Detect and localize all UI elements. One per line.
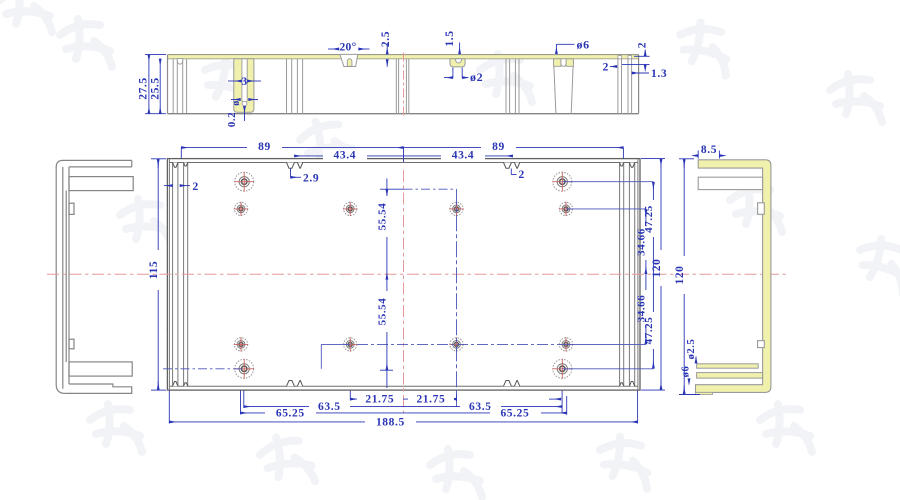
svg-text:ø2: ø2 [470, 70, 483, 84]
svg-text:1.5: 1.5 [444, 30, 456, 46]
svg-text:115: 115 [148, 261, 160, 279]
svg-text:ø: ø [231, 100, 242, 106]
svg-text:47.25: 47.25 [643, 317, 655, 345]
svg-text:47.25: 47.25 [643, 205, 655, 233]
svg-text:21.75: 21.75 [365, 394, 394, 406]
svg-text:188.5: 188.5 [376, 417, 405, 429]
svg-text:20°: 20° [340, 42, 357, 54]
svg-text:120: 120 [674, 265, 686, 284]
svg-text:63.5: 63.5 [318, 401, 341, 413]
svg-text:89: 89 [492, 141, 505, 153]
svg-text:63.5: 63.5 [469, 401, 492, 413]
svg-text:2: 2 [193, 181, 199, 193]
svg-text:2.9: 2.9 [303, 173, 319, 185]
svg-text:55.54: 55.54 [377, 203, 389, 231]
svg-text:8.5: 8.5 [701, 144, 717, 156]
svg-text:43.4: 43.4 [452, 149, 475, 161]
svg-text:2: 2 [637, 42, 649, 48]
svg-text:120: 120 [651, 258, 663, 277]
svg-text:0.2: 0.2 [226, 112, 238, 128]
svg-text:43.4: 43.4 [334, 149, 357, 161]
svg-text:89: 89 [258, 141, 271, 153]
svg-text:65.25: 65.25 [500, 408, 529, 420]
svg-text:2: 2 [603, 62, 609, 74]
svg-text:2: 2 [519, 169, 525, 181]
svg-text:21.75: 21.75 [416, 394, 445, 406]
svg-text:65.25: 65.25 [276, 408, 305, 420]
svg-text:ø6: ø6 [577, 37, 590, 51]
svg-text:3: 3 [241, 76, 247, 88]
svg-text:ø6: ø6 [680, 366, 691, 378]
svg-text:25.5: 25.5 [149, 77, 161, 100]
svg-text:2.5: 2.5 [380, 31, 392, 47]
svg-text:1.3: 1.3 [651, 68, 667, 80]
svg-text:27.5: 27.5 [138, 77, 150, 100]
svg-text:ø2.5: ø2.5 [686, 339, 697, 360]
svg-text:55.54: 55.54 [377, 298, 389, 326]
